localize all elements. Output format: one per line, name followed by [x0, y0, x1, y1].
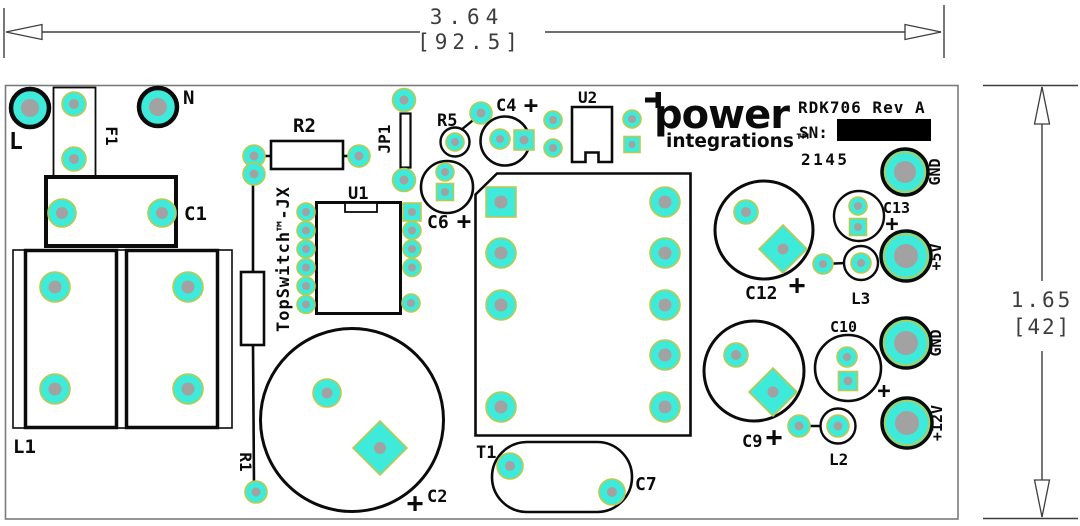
width-dimension: 3.64 [92.5]: [4, 5, 944, 58]
r2-body: [271, 141, 343, 169]
n-label: N: [183, 87, 194, 109]
arrow-down-icon: [1035, 480, 1050, 517]
c12-label: C12: [745, 283, 778, 304]
lot-code: 2145: [801, 150, 850, 169]
arrow-right-icon: [905, 25, 941, 40]
c10-label: C10: [830, 318, 857, 336]
l-label: L: [9, 129, 23, 155]
product-name: RDK706 Rev A: [798, 98, 926, 117]
u2-outline: [572, 107, 612, 162]
plus12v-label: +12V: [928, 405, 946, 441]
c4-polarity-plus: +: [524, 91, 538, 119]
u1-pin1-notch: [345, 203, 377, 212]
height-inches: 1.65: [1011, 288, 1074, 312]
r1-body: [241, 272, 264, 345]
c7-label: C7: [635, 474, 657, 495]
c12-polarity-plus: +: [789, 268, 806, 301]
l2-label: L2: [829, 450, 848, 469]
f1-label: F1: [102, 126, 121, 145]
arrow-up-icon: [1035, 87, 1050, 124]
arrow-left-icon: [6, 25, 42, 40]
u1-label: U1: [348, 184, 368, 204]
component-t1: T1: [476, 174, 691, 464]
c9-polarity-plus: +: [766, 420, 783, 453]
c2-polarity-plus: +: [407, 486, 424, 519]
l3-label: L3: [851, 289, 870, 308]
l1-label: L1: [13, 436, 36, 458]
topswitch-label: TopSwitch™-JX: [274, 186, 294, 332]
sn-label: SN:: [799, 123, 828, 142]
u1-outline: [317, 203, 401, 314]
component-c6: C6 +: [421, 161, 473, 235]
c12-outline: [715, 181, 813, 279]
width-mm: [92.5]: [417, 30, 523, 54]
drawing-canvas: 3.64 [92.5] 1.65 [42] F1 L N C1: [0, 0, 1080, 526]
c4-label: C4: [496, 96, 516, 116]
width-inches: 3.64: [430, 5, 505, 29]
plus5v-label: +5V: [927, 243, 945, 270]
height-dimension: 1.65 [42]: [983, 86, 1078, 519]
r5-label: R5: [437, 111, 457, 131]
c2-label: C2: [427, 487, 447, 507]
c9-outline: [704, 321, 804, 421]
c6-label: C6: [427, 212, 449, 233]
logo-integrations: integrations™: [666, 131, 812, 152]
sn-blackout-box: [837, 119, 931, 141]
l1-right-body: [127, 251, 218, 428]
gnd-bottom-label: GND: [927, 329, 945, 356]
c10-polarity-plus: +: [877, 379, 890, 404]
height-mm: [42]: [1013, 315, 1072, 339]
c9-label: C9: [742, 432, 762, 452]
u2-label: U2: [578, 88, 597, 107]
pcb-assembly-drawing: 3.64 [92.5] 1.65 [42] F1 L N C1: [0, 0, 1080, 526]
l1-left-body: [26, 251, 117, 428]
r1-label: R1: [236, 452, 255, 471]
c1-label: C1: [184, 203, 207, 225]
terminal-12v: +12V: [882, 398, 946, 448]
gnd-top-label: GND: [926, 158, 944, 185]
jp1-label: JP1: [375, 125, 394, 154]
t1-label: T1: [476, 443, 496, 463]
jp1-body: [401, 114, 411, 168]
c2-outline: [261, 329, 444, 512]
c6-polarity-plus: +: [457, 207, 471, 235]
logo-p-crossbar: [645, 98, 660, 103]
r2-label: R2: [293, 115, 316, 137]
